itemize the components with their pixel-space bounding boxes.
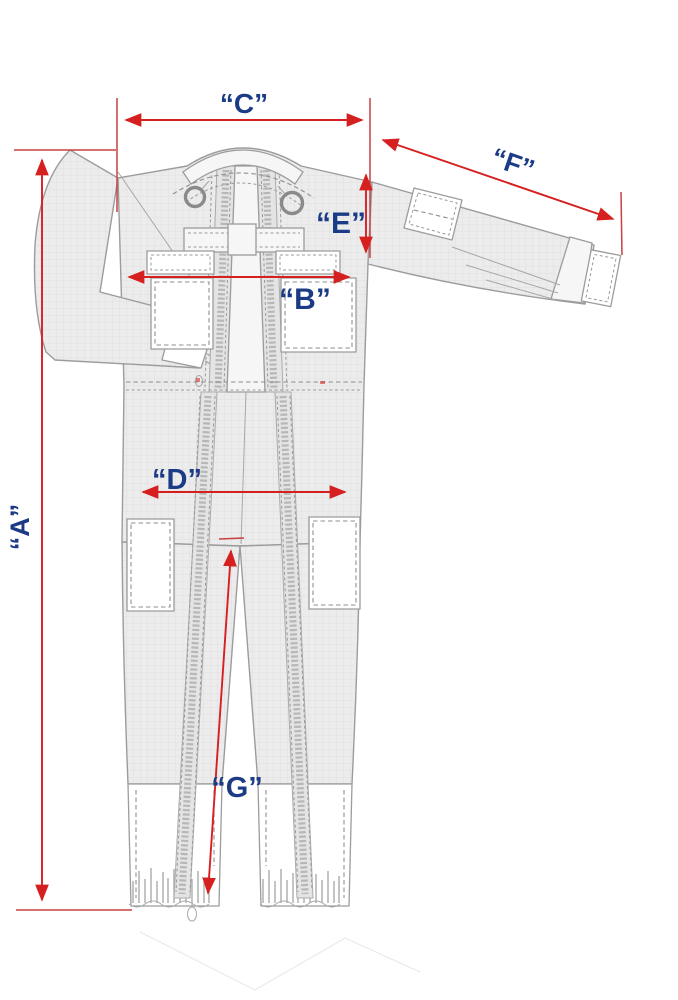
dimension-c-label: “C” [220,88,268,119]
dimension-a-label: “A” [5,504,35,551]
left-thigh-pocket [127,519,174,611]
right-thigh-pocket [309,517,360,609]
dimension-b-label: “B” [279,283,331,316]
dimension-e-label: “E” [316,207,366,240]
coverall-measurement-diagram: “C” “F” “E” “B” “A” “D” “G” [0,0,678,1000]
suit-drawing [34,148,620,990]
diagram-canvas: “C” “F” “E” “B” “A” “D” “G” [0,0,678,1000]
speck [196,378,200,382]
dimension-g-label: “G” [211,772,263,804]
left-chest-pocket [147,251,214,349]
speck [320,381,325,384]
dimension-d-label: “D” [152,464,202,496]
photo-crease [140,932,420,990]
